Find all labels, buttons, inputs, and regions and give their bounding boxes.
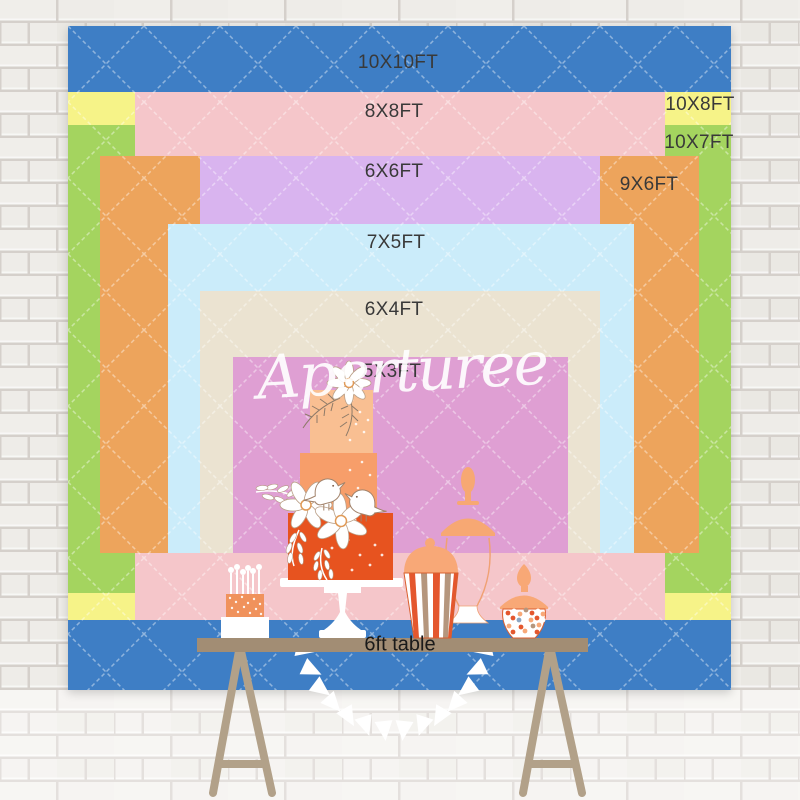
daisy-flower-illustration — [327, 361, 371, 405]
candy-jar-illustration — [500, 564, 548, 638]
popcorn-jar-illustration — [404, 538, 458, 638]
candle-cake-illustration — [221, 564, 269, 638]
table-size-label: 6ft table — [364, 634, 435, 657]
dessert-table-scene — [0, 0, 800, 800]
page: { "watermark": { "text": "Aperturee" }, … — [0, 0, 800, 800]
